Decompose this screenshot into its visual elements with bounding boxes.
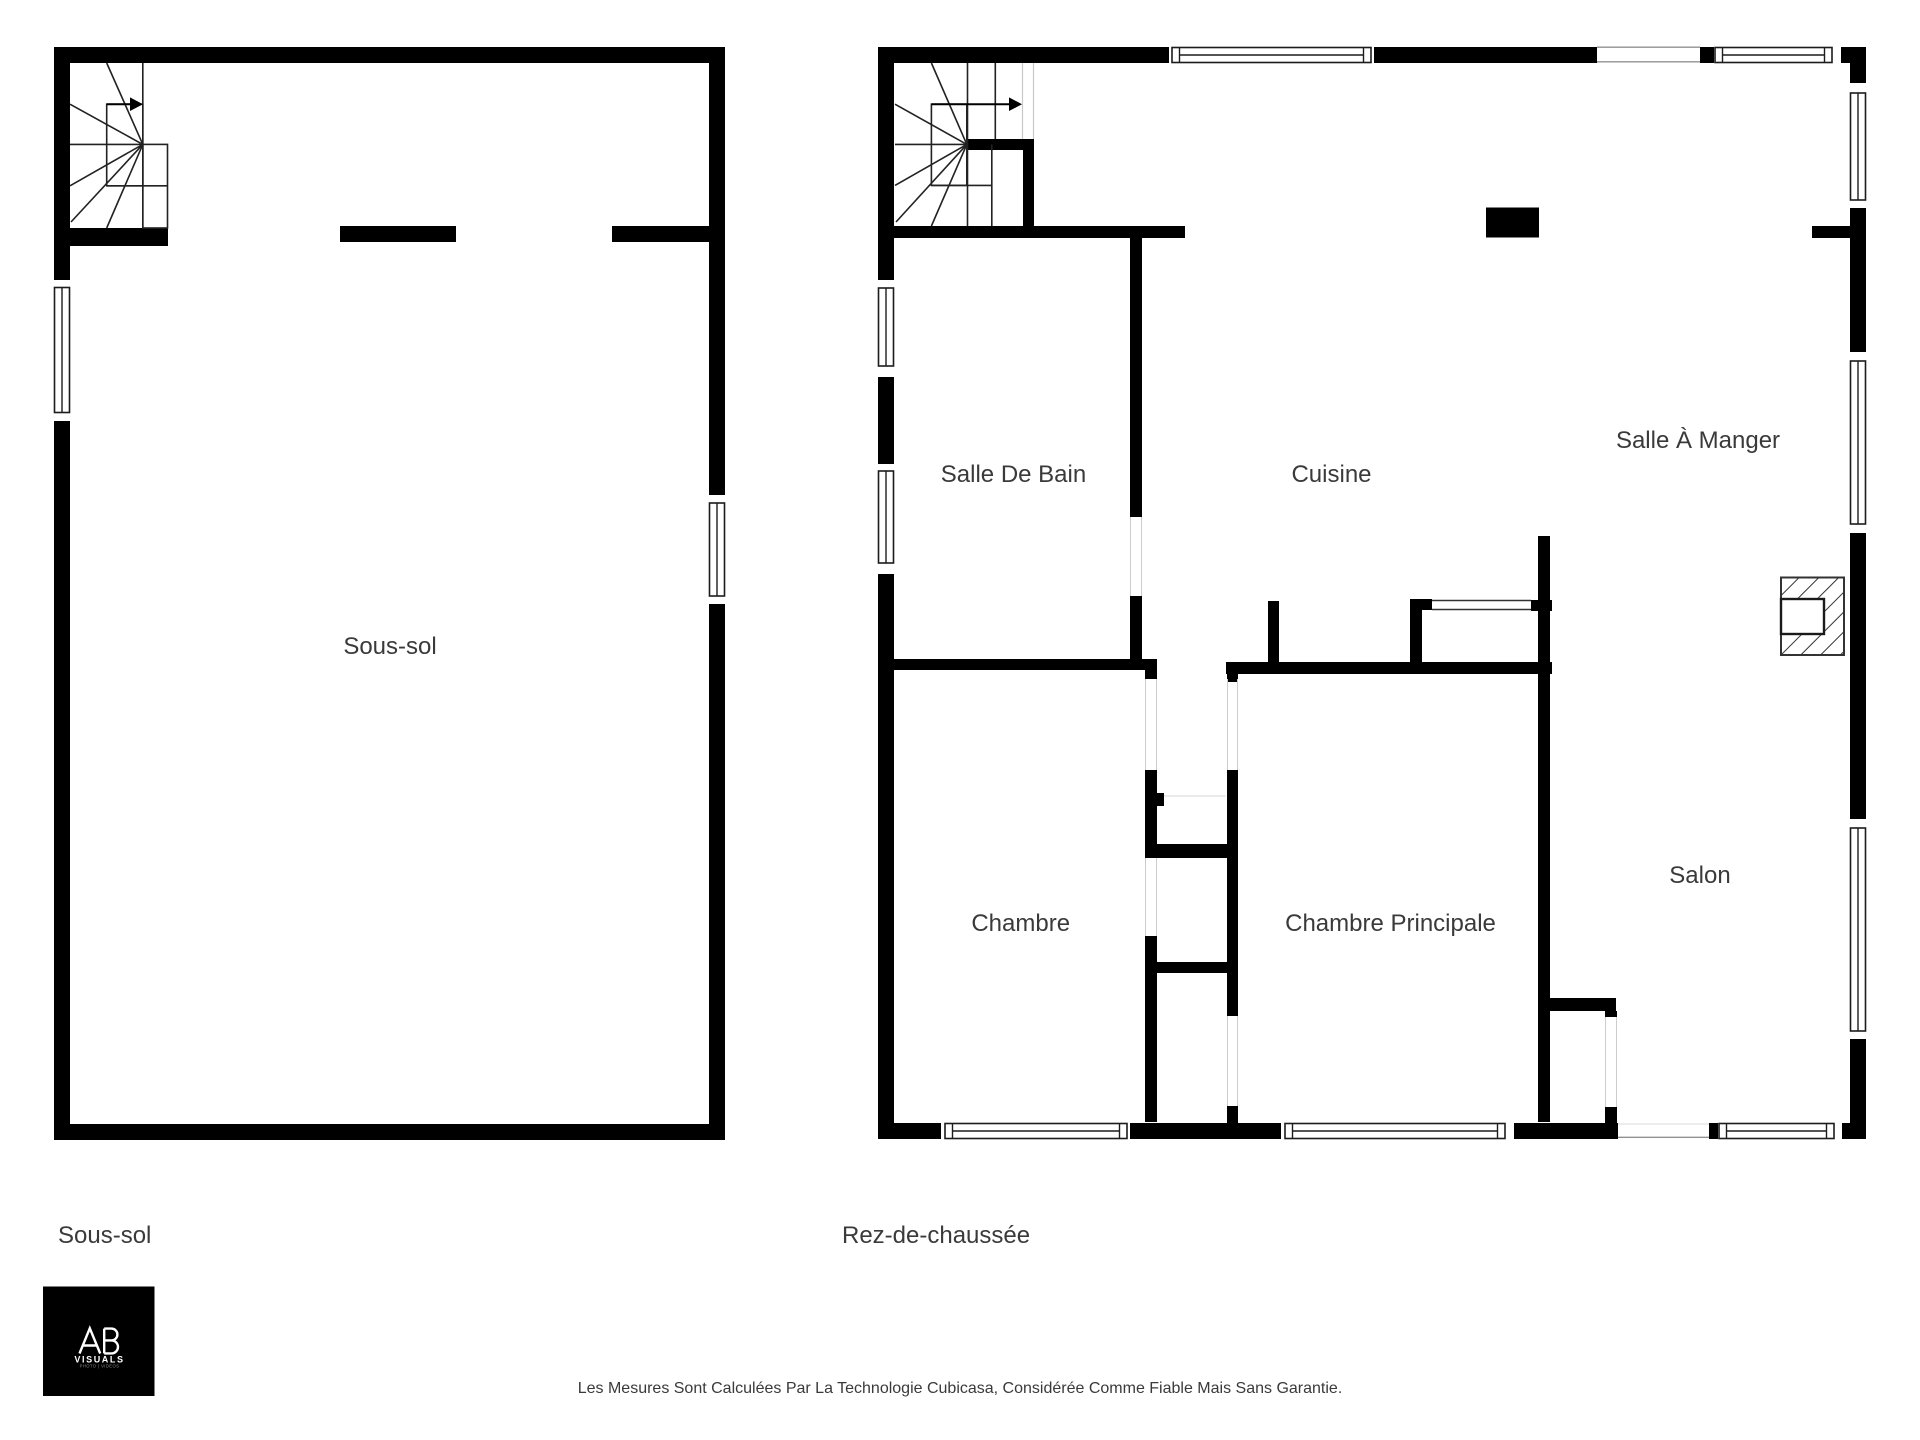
svg-text:Sous-sol: Sous-sol bbox=[343, 633, 436, 660]
svg-text:Rez-de-chaussée: Rez-de-chaussée bbox=[842, 1222, 1030, 1249]
svg-text:Les Mesures Sont Calculées Par: Les Mesures Sont Calculées Par La Techno… bbox=[578, 1380, 1343, 1397]
svg-text:Chambre: Chambre bbox=[971, 910, 1070, 937]
svg-text:Cuisine: Cuisine bbox=[1291, 461, 1371, 488]
svg-text:Salle À Manger: Salle À Manger bbox=[1616, 427, 1780, 454]
svg-text:Sous-sol: Sous-sol bbox=[58, 1222, 151, 1249]
svg-text:PHOTO | VIDEOS: PHOTO | VIDEOS bbox=[80, 1364, 120, 1369]
svg-text:Salle De Bain: Salle De Bain bbox=[941, 461, 1086, 488]
svg-text:Chambre Principale: Chambre Principale bbox=[1285, 910, 1496, 937]
svg-text:Salon: Salon bbox=[1669, 862, 1730, 889]
